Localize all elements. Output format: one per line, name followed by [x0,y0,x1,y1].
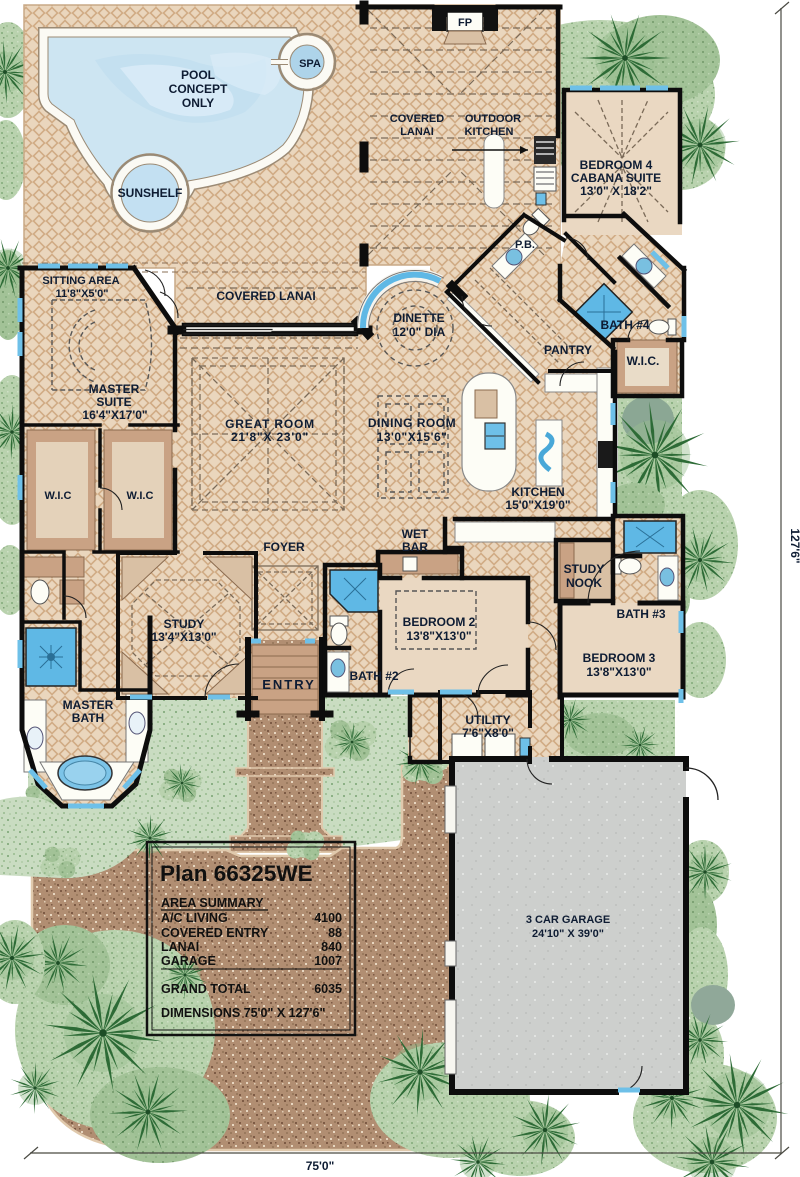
svg-text:13'8"X13'0": 13'8"X13'0" [406,629,471,643]
svg-text:LANAI: LANAI [400,126,434,138]
svg-text:COVERED LANAI: COVERED LANAI [216,289,315,303]
svg-text:SPA: SPA [299,58,321,70]
svg-text:GREAT ROOM: GREAT ROOM [225,417,315,431]
svg-text:UTILITY: UTILITY [465,713,510,727]
svg-text:COVERED ENTRY: COVERED ENTRY [161,926,269,940]
svg-text:BATH #3: BATH #3 [616,607,665,621]
svg-text:W.I.C.: W.I.C. [627,354,660,368]
svg-text:11'8"X5'0": 11'8"X5'0" [56,288,109,300]
svg-text:WET: WET [402,527,429,541]
svg-text:W.I.C: W.I.C [127,490,154,502]
svg-text:CABANA SUITE: CABANA SUITE [571,171,661,185]
svg-text:POOL: POOL [181,68,215,82]
svg-text:75'0": 75'0" [306,1159,335,1173]
svg-text:MASTER: MASTER [63,698,114,712]
svg-text:15'0"X19'0": 15'0"X19'0" [505,498,570,512]
svg-text:SITTING AREA: SITTING AREA [42,275,119,287]
svg-text:PANTRY: PANTRY [544,343,592,357]
svg-text:A/C LIVING: A/C LIVING [161,911,228,925]
svg-text:6035: 6035 [314,982,342,996]
svg-text:GARAGE: GARAGE [161,954,216,968]
svg-text:BATH: BATH [72,711,104,725]
svg-text:AREA SUMMARY: AREA SUMMARY [161,896,264,910]
svg-text:FOYER: FOYER [263,540,305,554]
svg-text:CONCEPT: CONCEPT [169,82,228,96]
svg-text:4100: 4100 [314,911,342,925]
svg-text:SUNSHELF: SUNSHELF [118,186,183,200]
svg-text:COVERED: COVERED [390,113,444,125]
svg-text:127'6": 127'6" [788,528,800,563]
svg-text:13'0" X 18'2": 13'0" X 18'2" [580,184,652,198]
svg-text:13'4"X13'0": 13'4"X13'0" [151,630,216,644]
svg-text:DINING ROOM: DINING ROOM [368,416,456,430]
svg-text:BATH #2: BATH #2 [349,669,398,683]
svg-text:13'8"X13'0": 13'8"X13'0" [586,665,651,679]
svg-text:DINETTE: DINETTE [393,311,444,325]
svg-text:1007: 1007 [314,954,342,968]
svg-text:W.I.C: W.I.C [45,490,72,502]
svg-text:16'4"X17'0": 16'4"X17'0" [82,408,147,422]
svg-text:12'0" DIA: 12'0" DIA [393,325,446,339]
svg-text:SUITE: SUITE [96,395,131,409]
svg-text:BEDROOM 4: BEDROOM 4 [580,158,653,172]
svg-text:13'0"X15'6": 13'0"X15'6" [377,430,448,444]
svg-text:BEDROOM 3: BEDROOM 3 [583,651,656,665]
svg-text:7'6"X8'0": 7'6"X8'0" [462,726,514,740]
svg-text:GRAND TOTAL: GRAND TOTAL [161,982,251,996]
svg-text:FP: FP [458,17,472,29]
svg-text:24'10" X 39'0": 24'10" X 39'0" [532,928,604,940]
svg-text:BAR: BAR [402,540,428,554]
svg-text:ENTRY: ENTRY [262,677,316,692]
svg-text:KITCHEN: KITCHEN [465,126,514,138]
svg-text:NOOK: NOOK [566,576,602,590]
svg-text:Plan 66325WE: Plan 66325WE [160,861,313,886]
svg-text:DIMENSIONS 75'0" X 127'6": DIMENSIONS 75'0" X 127'6" [161,1006,325,1020]
svg-text:OUTDOOR: OUTDOOR [465,113,521,125]
svg-text:ONLY: ONLY [182,96,214,110]
svg-text:STUDY: STUDY [564,562,605,576]
svg-text:KITCHEN: KITCHEN [511,485,564,499]
svg-text:LANAI: LANAI [161,940,199,954]
svg-text:STUDY: STUDY [164,617,205,631]
svg-text:MASTER: MASTER [89,382,140,396]
svg-text:BEDROOM 2: BEDROOM 2 [403,615,476,629]
svg-text:P.B.: P.B. [515,239,535,251]
svg-text:3 CAR GARAGE: 3 CAR GARAGE [526,914,610,926]
svg-text:840: 840 [321,940,342,954]
svg-text:BATH #4: BATH #4 [600,318,649,332]
svg-text:21'8"X 23'0": 21'8"X 23'0" [231,430,309,444]
svg-text:88: 88 [328,926,342,940]
